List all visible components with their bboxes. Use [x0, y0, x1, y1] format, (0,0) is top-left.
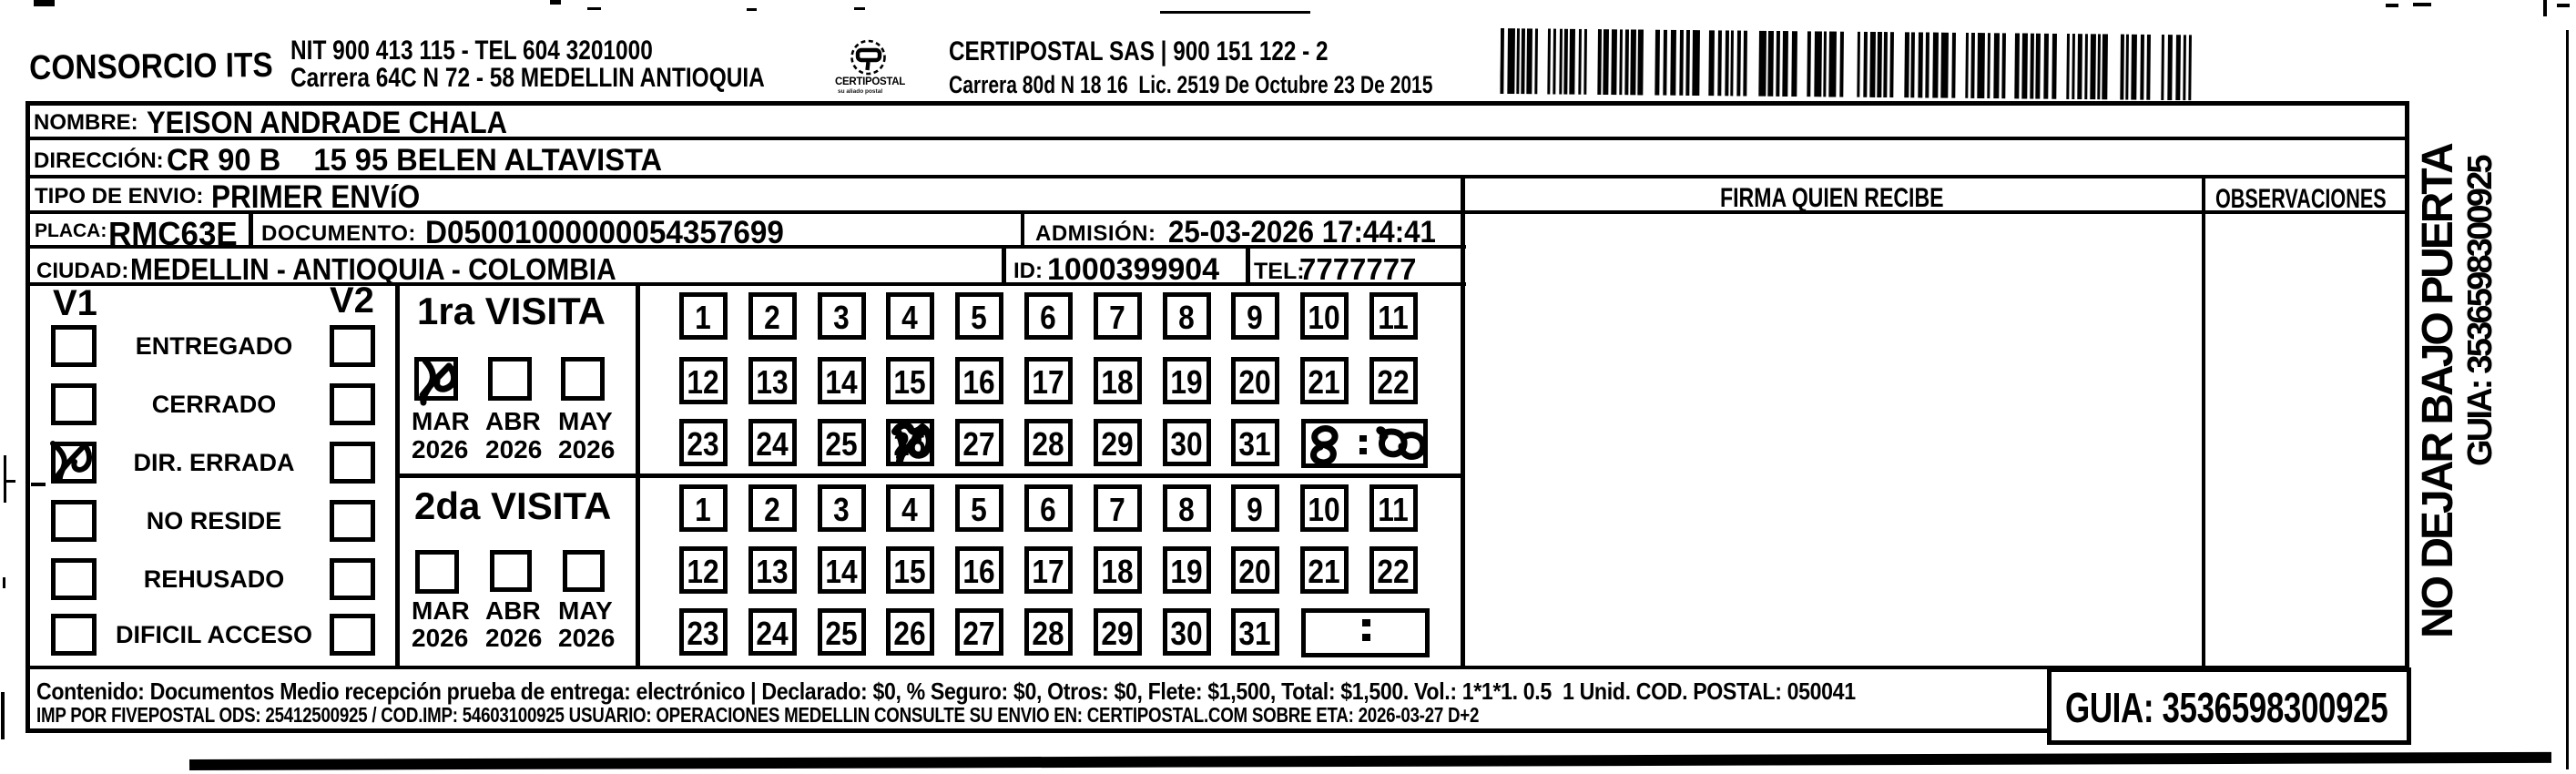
- svg-text:su aliado postal: su aliado postal: [838, 88, 882, 95]
- svg-text:CERTIPOSTAL: CERTIPOSTAL: [835, 76, 905, 87]
